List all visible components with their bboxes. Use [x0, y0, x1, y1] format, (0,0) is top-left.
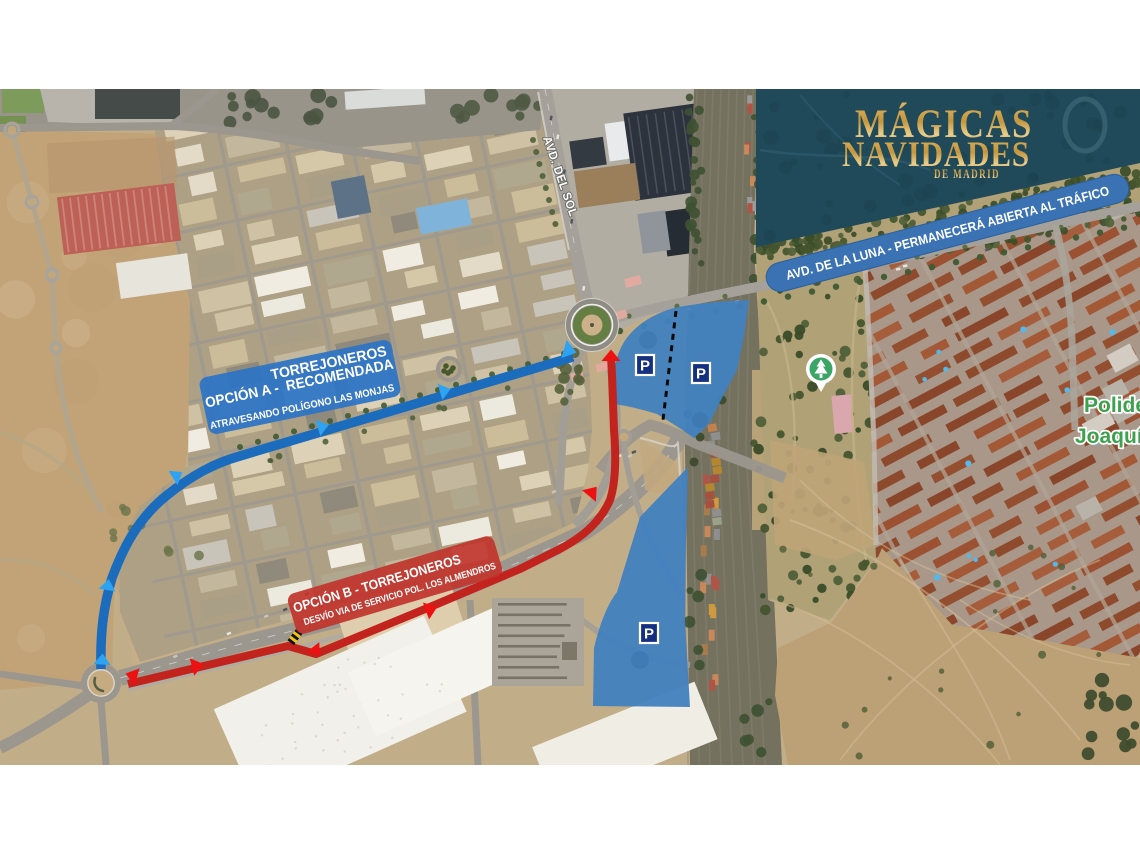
svg-text:Polidep: Polidep [1084, 394, 1140, 417]
svg-text:P: P [640, 358, 650, 375]
svg-text:P: P [644, 626, 654, 643]
svg-text:Joaquí: Joaquí [1075, 425, 1140, 448]
svg-text:P: P [696, 366, 706, 383]
svg-text:DE MADRID: DE MADRID [934, 166, 1000, 181]
